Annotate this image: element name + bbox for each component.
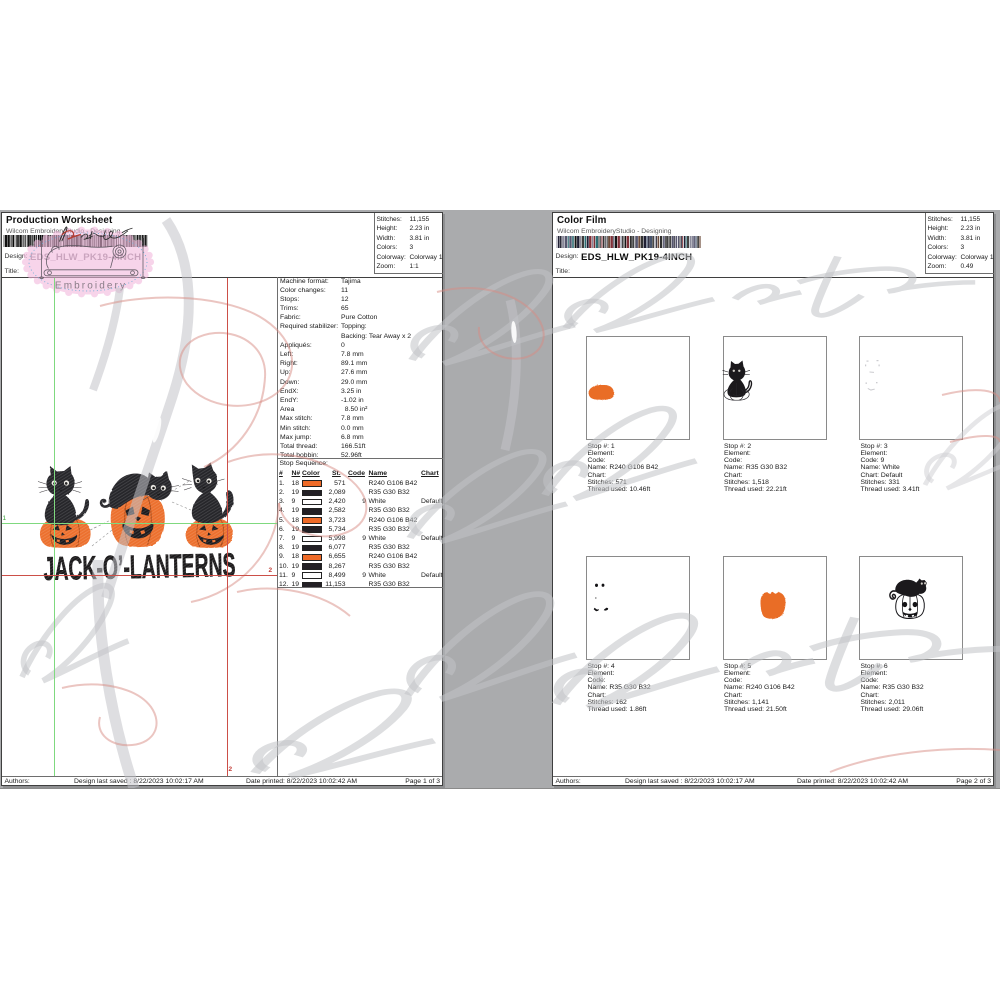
svg-text:Embroidery: Embroidery: [55, 281, 127, 292]
